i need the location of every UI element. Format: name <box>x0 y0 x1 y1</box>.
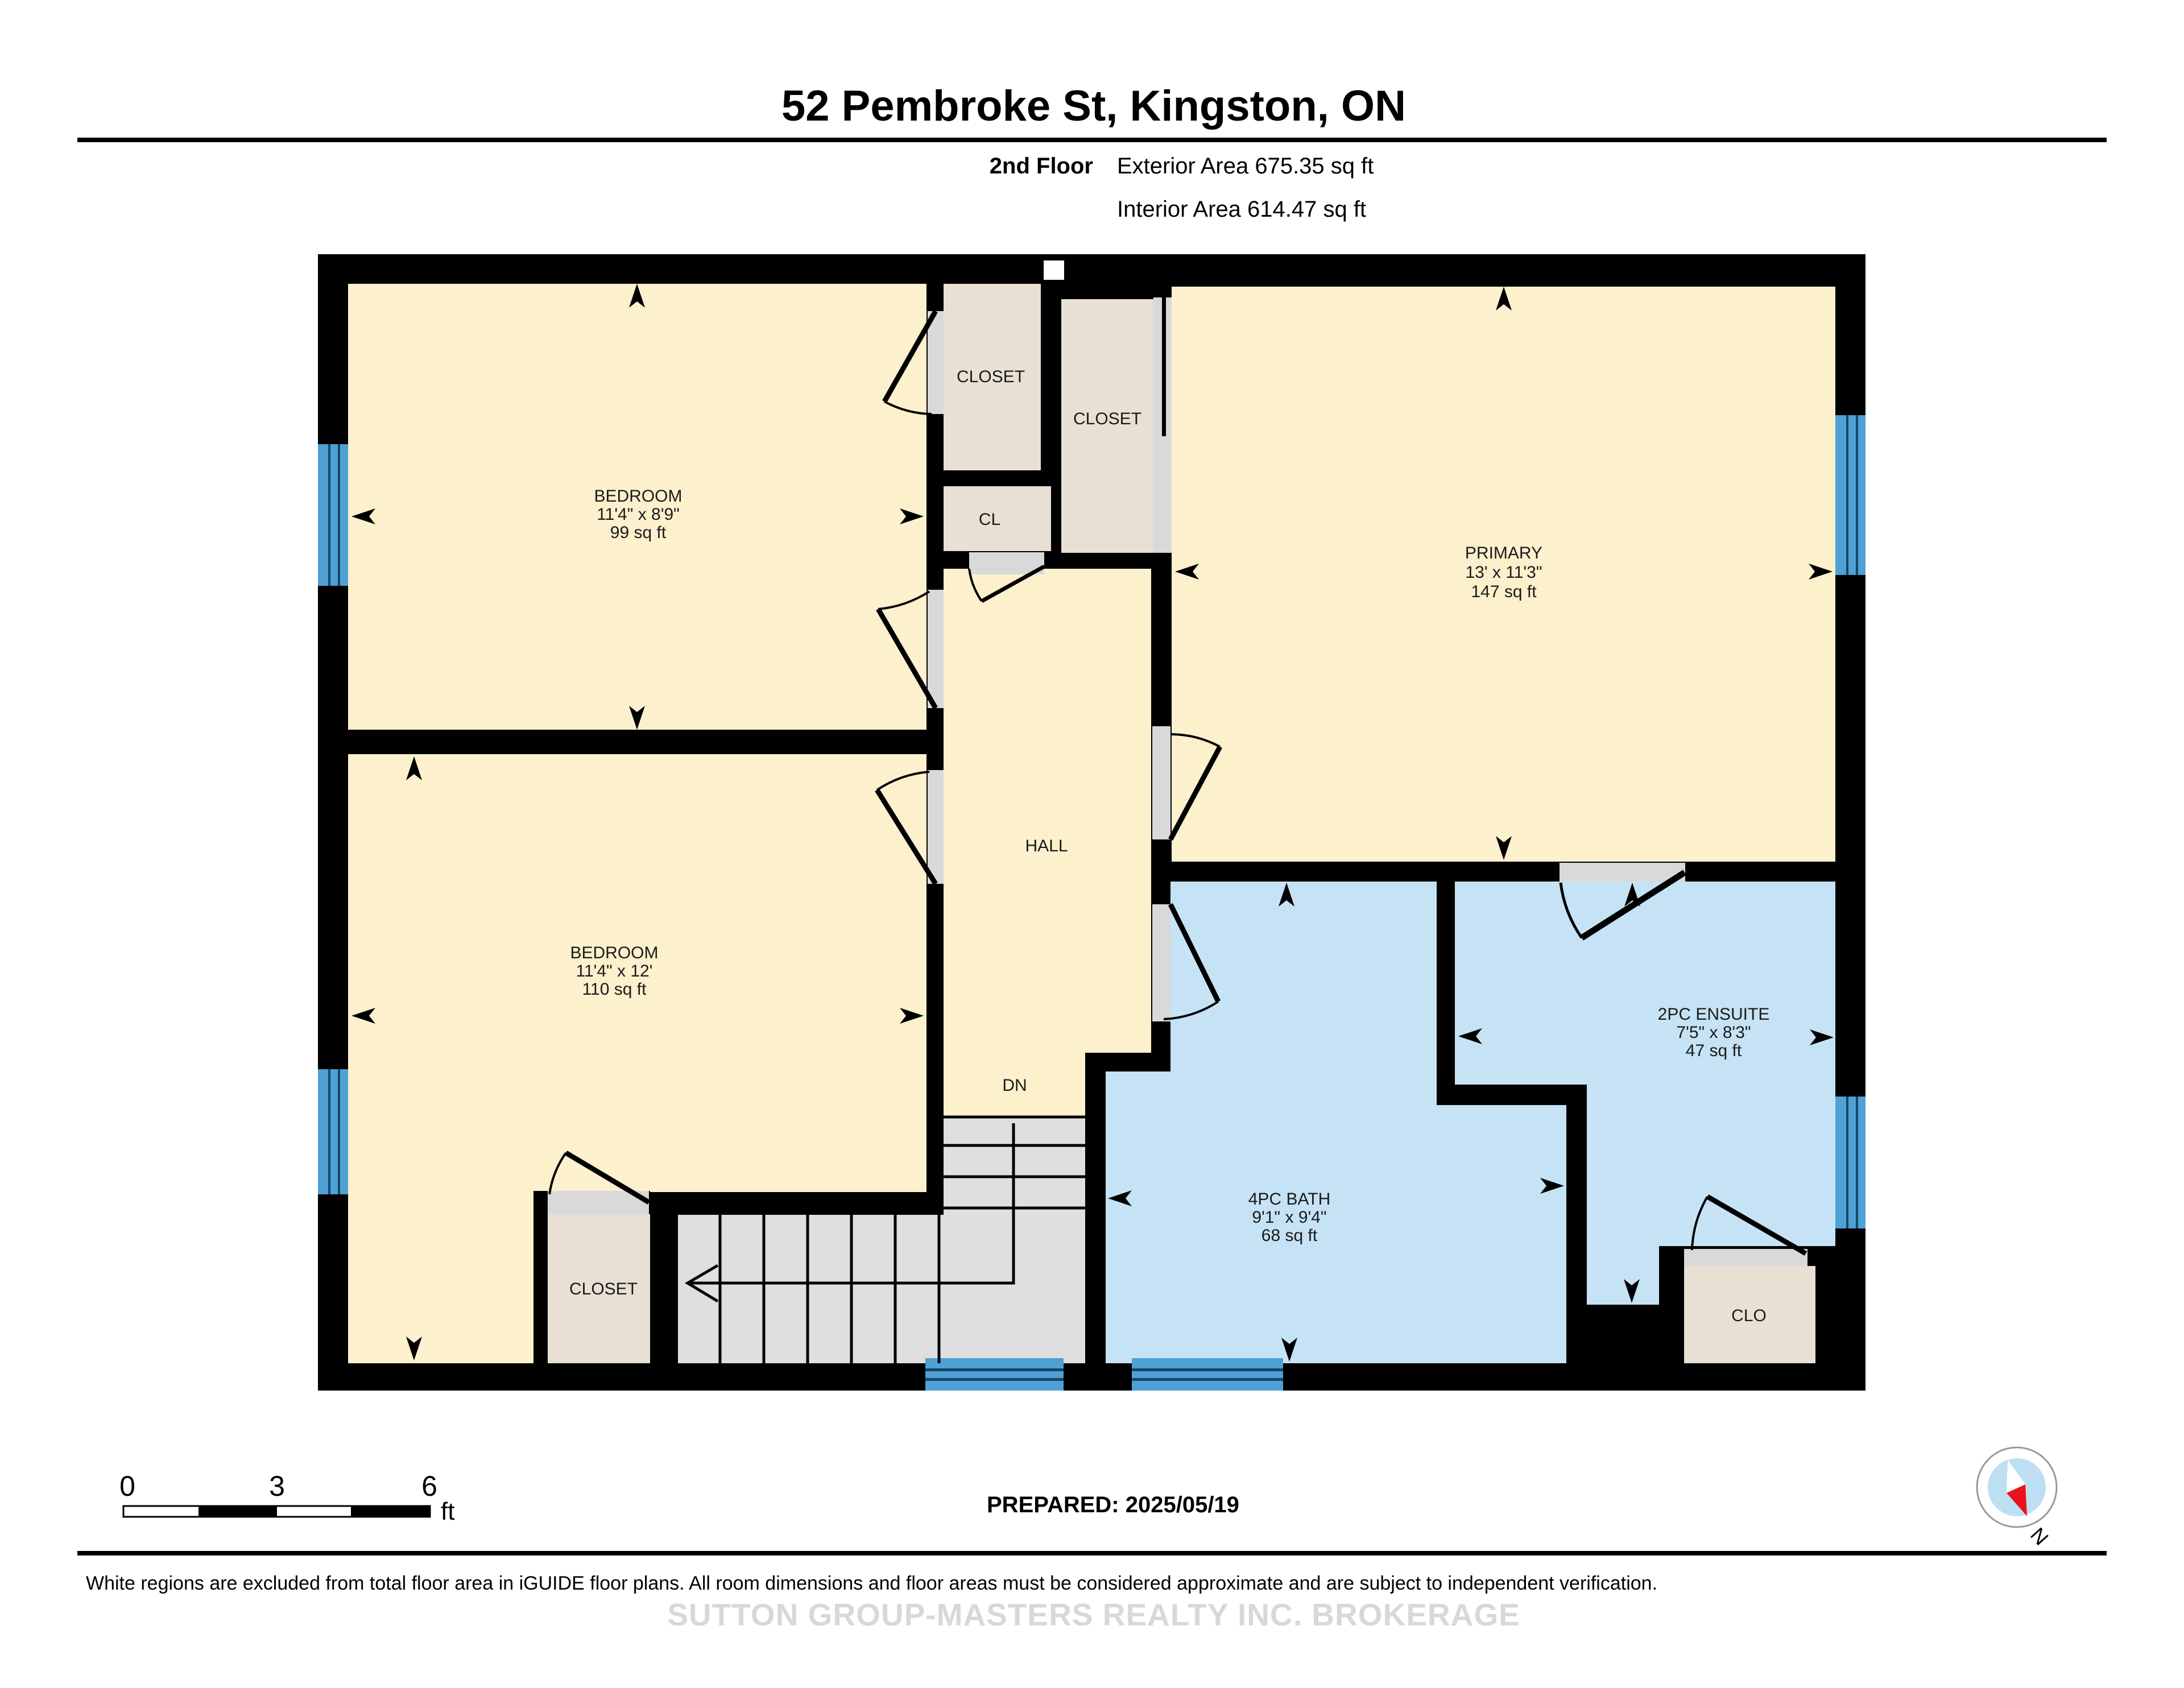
svg-text:CLOSET: CLOSET <box>957 367 1025 386</box>
svg-text:6: 6 <box>421 1470 437 1502</box>
svg-text:110 sq ft: 110 sq ft <box>582 980 647 999</box>
svg-text:3: 3 <box>269 1470 285 1502</box>
svg-text:HALL: HALL <box>1025 837 1068 855</box>
svg-text:4PC BATH: 4PC BATH <box>1248 1190 1330 1209</box>
svg-text:ft: ft <box>441 1497 454 1525</box>
svg-text:CLOSET: CLOSET <box>1073 409 1141 428</box>
svg-text:2nd Floor: 2nd Floor <box>990 154 1093 179</box>
svg-text:99 sq ft: 99 sq ft <box>610 523 667 542</box>
svg-text:White regions are excluded fro: White regions are excluded from total fl… <box>86 1573 1657 1594</box>
svg-text:BEDROOM: BEDROOM <box>570 944 658 962</box>
svg-text:DN: DN <box>1002 1076 1027 1095</box>
svg-text:11'4" x 12': 11'4" x 12' <box>576 962 653 980</box>
svg-text:11'4" x 8'9": 11'4" x 8'9" <box>597 505 680 524</box>
svg-text:Exterior Area 675.35 sq ft: Exterior Area 675.35 sq ft <box>1117 154 1374 179</box>
svg-text:Interior Area 614.47 sq ft: Interior Area 614.47 sq ft <box>1117 197 1366 222</box>
svg-text:0: 0 <box>119 1470 135 1502</box>
svg-text:CLO: CLO <box>1731 1306 1767 1325</box>
svg-text:68 sq ft: 68 sq ft <box>1261 1226 1318 1245</box>
svg-text:47 sq ft: 47 sq ft <box>1686 1041 1742 1060</box>
svg-text:SUTTON GROUP-MASTERS REALTY IN: SUTTON GROUP-MASTERS REALTY INC. BROKERA… <box>667 1597 1520 1632</box>
svg-text:7'5" x 8'3": 7'5" x 8'3" <box>1676 1023 1751 1042</box>
svg-text:52 Pembroke St, Kingston, ON: 52 Pembroke St, Kingston, ON <box>781 82 1406 130</box>
svg-text:CL: CL <box>979 510 1000 529</box>
svg-text:13' x 11'3": 13' x 11'3" <box>1466 563 1542 582</box>
svg-text:9'1" x 9'4": 9'1" x 9'4" <box>1252 1208 1326 1227</box>
svg-text:2PC ENSUITE: 2PC ENSUITE <box>1658 1005 1770 1024</box>
svg-text:147 sq ft: 147 sq ft <box>1471 582 1537 601</box>
svg-text:CLOSET: CLOSET <box>569 1280 638 1298</box>
svg-text:PREPARED: 2025/05/19: PREPARED: 2025/05/19 <box>987 1492 1239 1517</box>
svg-text:BEDROOM: BEDROOM <box>594 487 682 506</box>
svg-text:PRIMARY: PRIMARY <box>1465 544 1542 562</box>
